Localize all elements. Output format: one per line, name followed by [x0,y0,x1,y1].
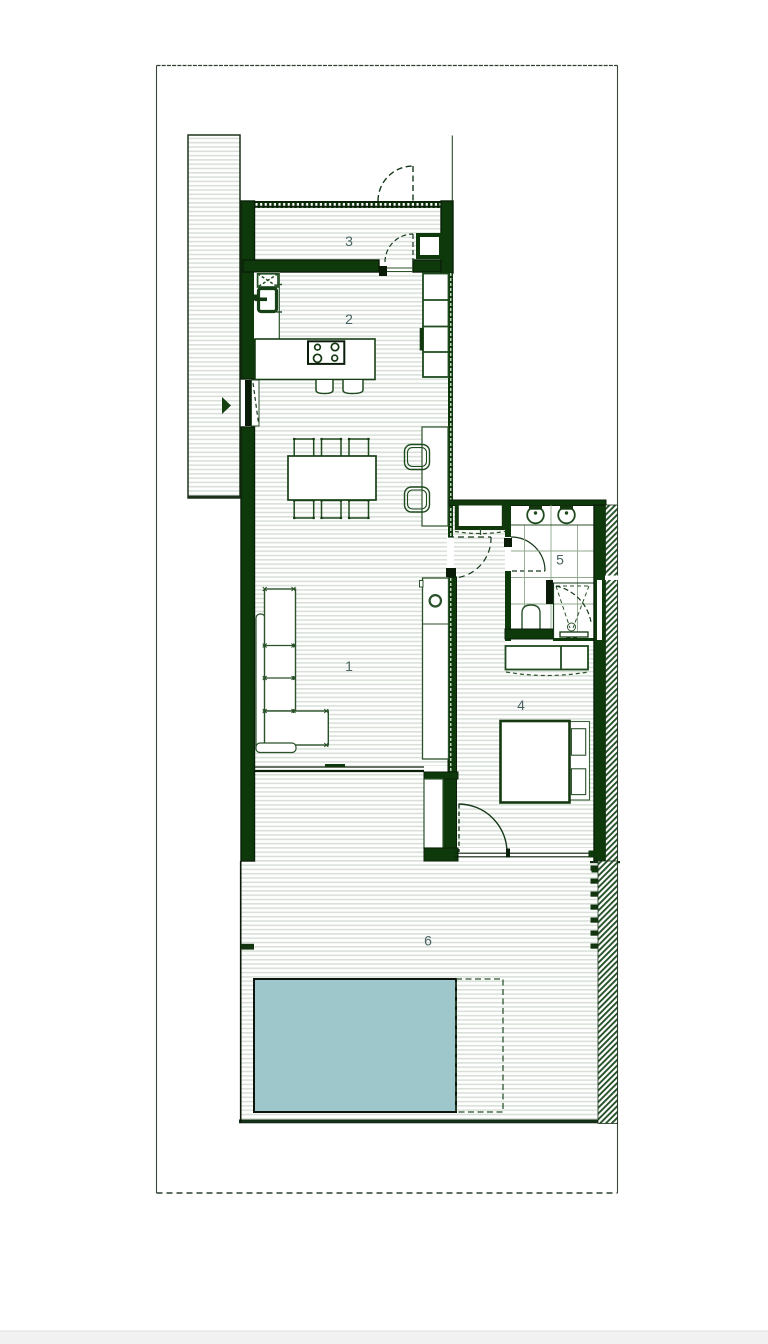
svg-text:2: 2 [345,311,353,327]
svg-text:3: 3 [345,233,353,249]
svg-text:1: 1 [345,658,353,674]
svg-text:4: 4 [517,697,525,713]
svg-text:6: 6 [424,933,432,949]
svg-text:5: 5 [556,552,564,568]
